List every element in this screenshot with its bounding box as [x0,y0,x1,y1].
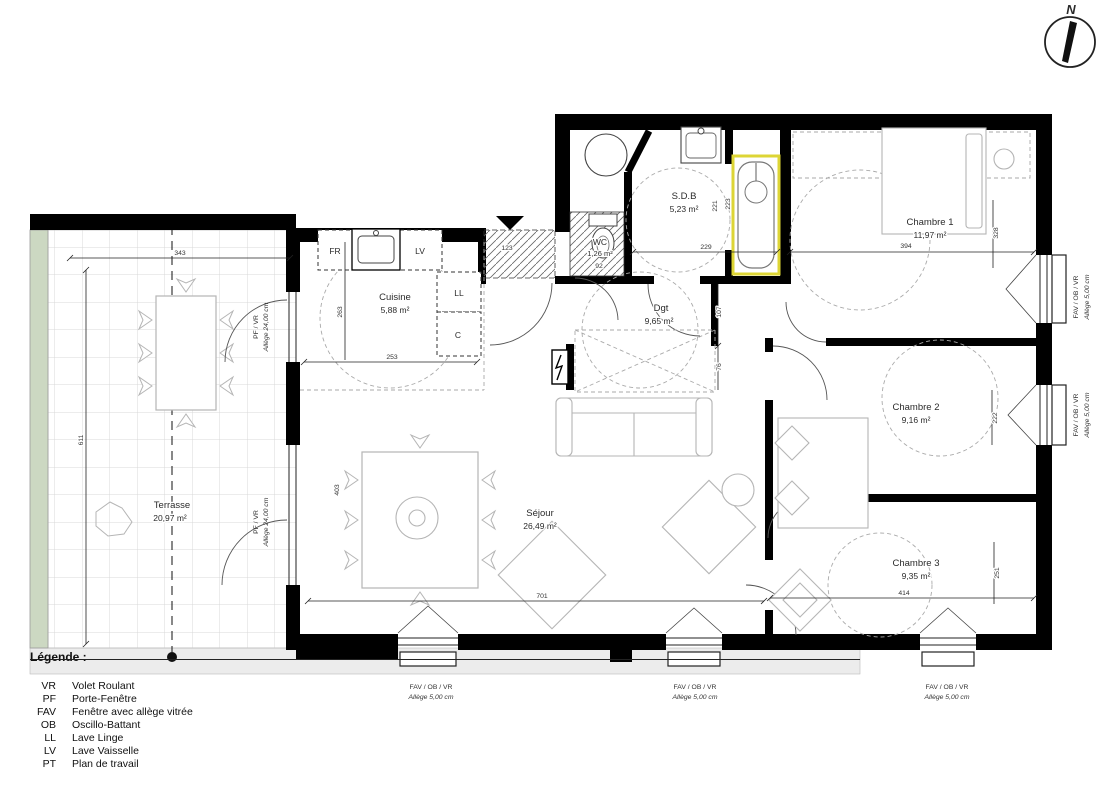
legend-label: Oscillo-Battant [72,719,140,732]
legend-title: Légende : [30,650,870,664]
window-label-terrace-2-allege: Allège 24,00 cm [263,497,270,547]
toilet [589,214,617,226]
legend-label: Porte-Fenêtre [72,693,137,706]
planter-strip [30,230,48,648]
dishwasher-label: LV [415,246,425,256]
room-label-sdb: S.D.B [672,191,697,202]
room-label-chambre2: Chambre 2 [893,402,940,413]
legend-label: Volet Roulant [72,680,134,693]
room-area-dgt: 9,65 m² [645,316,674,326]
legend-abbr: LV [30,745,56,758]
legend: Légende : VR Volet Roulant PF Porte-Fenê… [30,650,870,771]
legend-abbr: OB [30,719,56,732]
washbasin [585,134,627,176]
window-label-bottom-3-type: FAV / OB / VR [926,684,969,691]
legend-items: VR Volet Roulant PF Porte-Fenêtre FAV Fe… [30,680,870,771]
legend-abbr: VR [30,680,56,693]
entrance-arrow [496,216,524,230]
room-area-cuisine: 5,88 m² [381,305,410,315]
dim-cuisine-depth: 263 [337,306,344,318]
window-label-bottom-3-allege: Allège 5,00 cm [924,694,970,701]
dim-sejour-depth: 403 [334,484,341,496]
window-label-terrace-2-type: PF / VR [253,510,260,534]
legend-label: Fenêtre avec allège vitrée [72,706,193,719]
dim-entry: 123 [501,245,513,252]
dim-chambre1-width: 394 [900,243,912,250]
legend-row-pt: PT Plan de travail [30,758,870,771]
legend-row-pf: PF Porte-Fenêtre [30,693,870,706]
closet-label: C [455,330,461,340]
room-label-dgt: Dgt [654,303,669,314]
legend-label: Lave Linge [72,732,123,745]
room-label-chambre1: Chambre 1 [907,217,954,228]
dim-sejour-width: 701 [536,593,548,600]
dim-terrasse-depth: 611 [78,434,85,445]
dim-sdb-width: 229 [700,244,712,251]
legend-row-vr: VR Volet Roulant [30,680,870,693]
legend-abbr: FAV [30,706,56,719]
legend-label: Plan de travail [72,758,139,771]
legend-row-ll: LL Lave Linge [30,732,870,745]
north-label: N [1066,2,1076,17]
room-area-chambre1: 11,97 m² [914,230,947,240]
room-label-cuisine: Cuisine [379,292,411,303]
fridge-label: FR [329,246,340,256]
legend-row-ob: OB Oscillo-Battant [30,719,870,732]
room-label-sejour: Séjour [526,508,553,519]
bedroom-furniture [769,128,1014,631]
dim-sdb-depth-b: 223 [725,198,732,210]
dim-terrasse-width: 343 [174,250,186,257]
window-label-right-1-allege: Allège 5,00 cm [1084,274,1091,320]
window-label-right-1-type: FAV / OB / VR [1073,275,1080,318]
floor-plan-page: Terrasse 20,97 m² Cuisine 5,88 m² Séjour… [0,0,1119,800]
dim-dgt-b: 76 [716,363,723,371]
room-area-chambre3: 9,35 m² [902,571,931,581]
room-label-terrasse: Terrasse [154,500,190,511]
legend-abbr: LL [30,732,56,745]
dim-cuisine-width: 253 [386,354,398,361]
window-label-right-2-type: FAV / OB / VR [1073,393,1080,436]
dim-chambre3-width: 414 [898,590,910,597]
room-area-terrasse: 20,97 m² [153,513,187,523]
legend-row-fav: FAV Fenêtre avec allège vitrée [30,706,870,719]
room-area-chambre2: 9,16 m² [902,415,931,425]
legend-abbr: PT [30,758,56,771]
legend-divider [30,659,860,660]
dim-sdb-depth-a: 221 [712,200,719,212]
room-area-sdb: 5,23 m² [670,204,699,214]
window-label-terrace-1-allege: Allège 24,00 cm [263,302,270,352]
dim-wc: 92 [595,263,603,270]
window-label-terrace-1-type: PF / VR [253,315,260,339]
room-area-wc: 1,26 m² [587,249,613,258]
room-label-wc: WC [593,237,607,247]
north-arrow: N [1045,2,1095,67]
dim-chambre3-depth: 251 [994,567,1001,579]
legend-abbr: PF [30,693,56,706]
room-area-sejour: 26,49 m² [523,521,557,531]
washer-label: LL [454,288,464,298]
legend-label: Lave Vaisselle [72,745,139,758]
legend-row-lv: LV Lave Vaisselle [30,745,870,758]
dim-chambre1-depth: 328 [993,227,1000,239]
dim-dgt-a: 107 [716,306,723,318]
window-label-right-2-allege: Allège 5,00 cm [1084,392,1091,438]
dim-chambre2-depth: 222 [992,412,999,424]
room-label-chambre3: Chambre 3 [893,558,940,569]
